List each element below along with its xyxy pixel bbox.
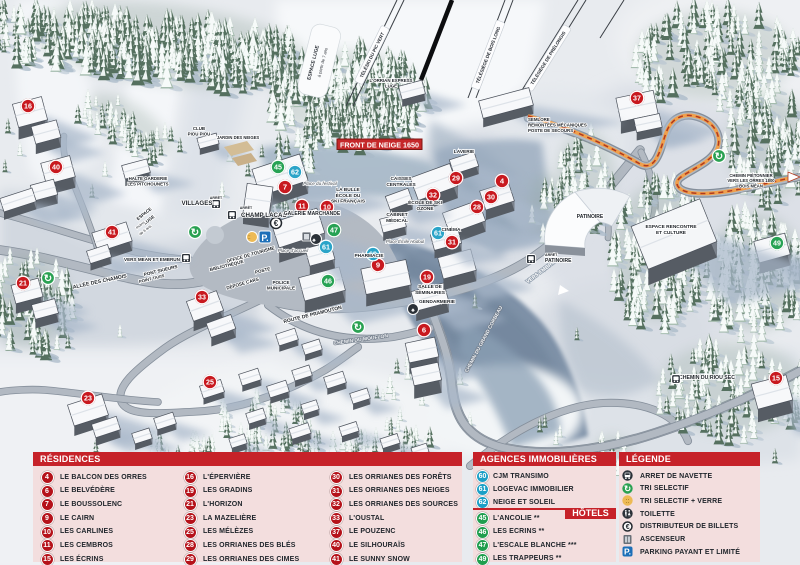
svg-text:BOIS MÉAN: BOIS MÉAN (739, 183, 763, 188)
svg-text:ARRÊT: ARRÊT (240, 205, 253, 210)
svg-text:LES PITCHOUNETS: LES PITCHOUNETS (127, 181, 168, 186)
svg-text:GENDARMERIE: GENDARMERIE (419, 299, 456, 305)
svg-text:OZONE: OZONE (416, 206, 434, 212)
svg-text:::: :: (626, 498, 630, 505)
svg-text:9: 9 (376, 261, 380, 270)
svg-text:62: 62 (291, 169, 299, 177)
svg-text:21: 21 (19, 280, 27, 288)
svg-text:31: 31 (448, 239, 456, 247)
svg-text:16: 16 (24, 103, 32, 111)
svg-text:CHAMP LACAS: CHAMP LACAS (241, 212, 287, 219)
svg-text:MUNICIPALE: MUNICIPALE (267, 286, 295, 291)
svg-text:ESPACE RENCONTRE: ESPACE RENCONTRE (645, 224, 697, 230)
svg-text:37: 37 (633, 95, 641, 103)
svg-text:47: 47 (330, 227, 338, 235)
svg-text:28: 28 (473, 204, 481, 212)
svg-text:€: € (626, 524, 630, 531)
svg-text:HALTE GARDERIE: HALTE GARDERIE (129, 176, 168, 181)
svg-text:45: 45 (274, 164, 282, 172)
svg-text:49: 49 (773, 240, 781, 248)
svg-text:25: 25 (206, 379, 214, 387)
svg-text:↻: ↻ (354, 323, 362, 334)
svg-text:7: 7 (283, 183, 287, 192)
svg-text:29: 29 (452, 175, 460, 183)
svg-text:P.: P. (261, 233, 268, 243)
svg-text:CAISSES: CAISSES (390, 176, 412, 182)
svg-text:VERS MEAN ET EMBRUN: VERS MEAN ET EMBRUN (124, 257, 181, 262)
svg-text:POSTE DE SECOURS: POSTE DE SECOURS (528, 128, 573, 133)
svg-text:↻: ↻ (44, 274, 52, 285)
svg-text:SKI FRANÇAIS: SKI FRANÇAIS (331, 199, 366, 205)
svg-text:23: 23 (84, 395, 92, 403)
svg-text:POLICE: POLICE (272, 280, 289, 285)
svg-text:↻: ↻ (191, 228, 199, 239)
svg-text:CENTRALES: CENTRALES (386, 182, 416, 188)
svg-text:♠: ♠ (312, 237, 316, 244)
svg-text:40: 40 (52, 164, 60, 172)
svg-text:LAVERIE: LAVERIE (454, 149, 475, 155)
svg-text:LUGE: LUGE (385, 83, 397, 88)
svg-text:ET CULTURE: ET CULTURE (656, 230, 687, 236)
svg-text:30: 30 (487, 194, 495, 202)
svg-text:61: 61 (322, 244, 330, 252)
svg-text:::: :: (247, 235, 251, 241)
svg-text:L'ORRIAN EXPRESS: L'ORRIAN EXPRESS (369, 78, 412, 83)
svg-text:ARRÊT: ARRÊT (210, 195, 223, 200)
svg-text:PHARMACIE: PHARMACIE (354, 253, 384, 259)
svg-text:41: 41 (108, 229, 116, 237)
svg-text:P.: P. (624, 547, 631, 557)
svg-text:JARDIN DES NEIGES: JARDIN DES NEIGES (217, 135, 260, 140)
svg-text:PATINOIRE: PATINOIRE (577, 214, 604, 220)
svg-text:PATINOIRE: PATINOIRE (545, 258, 572, 264)
svg-text:SALLE DE: SALLE DE (418, 284, 443, 290)
svg-text:ARRÊT: ARRÊT (545, 252, 558, 257)
svg-text:Place d'accueil: Place d'accueil (278, 248, 309, 253)
svg-text:Place Émile Hodoul: Place Émile Hodoul (386, 239, 425, 244)
svg-text:REMONTÉES MÉCANIQUES: REMONTÉES MÉCANIQUES (528, 122, 587, 127)
svg-text:↻: ↻ (624, 483, 631, 493)
svg-text:€: € (274, 219, 279, 228)
svg-text:Place du festival: Place du festival (303, 181, 337, 186)
svg-text:15: 15 (772, 375, 780, 383)
svg-text:CHEMIN DU RIOU SEC: CHEMIN DU RIOU SEC (679, 375, 735, 381)
svg-text:6: 6 (422, 326, 426, 335)
svg-text:♠: ♠ (411, 307, 415, 314)
svg-text:CABINET: CABINET (386, 212, 407, 218)
svg-text:SEMLORE: SEMLORE (528, 117, 550, 122)
svg-text:↻: ↻ (715, 152, 723, 163)
svg-text:46: 46 (324, 278, 332, 286)
svg-text:CLUB: CLUB (193, 126, 205, 131)
svg-text:11: 11 (298, 203, 306, 211)
svg-text:32: 32 (429, 192, 437, 200)
svg-text:33: 33 (198, 294, 206, 302)
svg-text:VILLAGES: VILLAGES (182, 200, 213, 207)
svg-text:LA BULLE: LA BULLE (336, 187, 360, 193)
svg-text:GALERIE MARCHANDE: GALERIE MARCHANDE (284, 211, 341, 217)
svg-text:PIOU PIOU: PIOU PIOU (188, 131, 211, 136)
svg-text:FRONT DE NEIGE 1650: FRONT DE NEIGE 1650 (340, 140, 419, 149)
svg-text:19: 19 (423, 274, 431, 282)
